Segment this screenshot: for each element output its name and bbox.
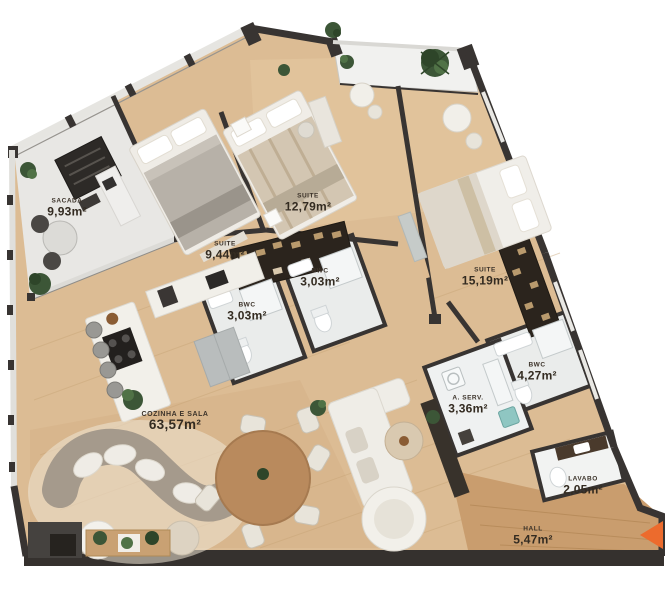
- armchair: [350, 83, 374, 107]
- floor-plan-page: SACADA9,93m² SUITE9,44m² SUITE12,79m² BW…: [0, 0, 665, 602]
- desk-chair: [298, 122, 314, 138]
- armchair: [443, 104, 471, 132]
- floor-plan: [0, 0, 665, 602]
- wall-post: [27, 293, 35, 301]
- exterior-block-inner: [50, 534, 76, 556]
- balcony-chair: [43, 252, 61, 270]
- round-armchair-seat: [374, 499, 414, 539]
- table-decor: [399, 436, 409, 446]
- wall-cap: [429, 314, 441, 324]
- balcony-chair: [31, 215, 49, 233]
- plant: [421, 49, 449, 77]
- ottoman: [466, 133, 482, 149]
- table-centerpiece: [257, 468, 269, 480]
- ottoman: [368, 105, 382, 119]
